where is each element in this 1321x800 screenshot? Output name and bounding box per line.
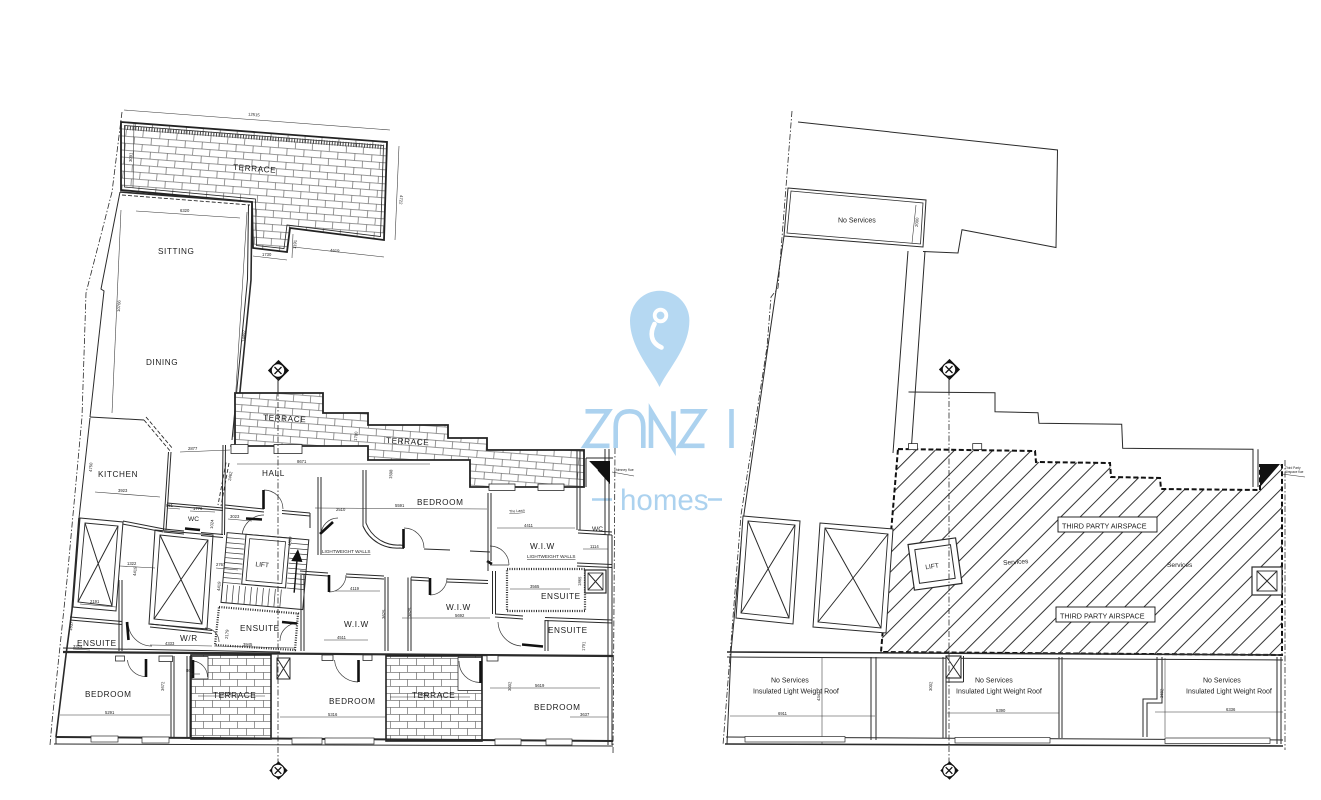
- svg-text:WC: WC: [188, 516, 199, 523]
- svg-text:860: 860: [186, 668, 194, 673]
- svg-text:2877: 2877: [188, 446, 198, 451]
- svg-text:No Services: No Services: [771, 678, 809, 685]
- svg-text:3776: 3776: [222, 691, 232, 696]
- svg-text:BEDROOM: BEDROOM: [85, 690, 132, 699]
- svg-text:2510: 2510: [336, 507, 346, 512]
- svg-text:3625: 3625: [407, 607, 412, 617]
- svg-text:14492: 14492: [241, 329, 247, 342]
- svg-text:3002: 3002: [928, 681, 933, 691]
- svg-text:ENSUITE: ENSUITE: [77, 639, 117, 648]
- svg-text:6336: 6336: [1226, 707, 1236, 712]
- svg-text:4051: 4051: [420, 692, 430, 697]
- svg-text:5390: 5390: [996, 708, 1006, 713]
- svg-text:BEDROOM: BEDROOM: [417, 498, 464, 507]
- svg-text:1322: 1322: [127, 561, 137, 566]
- svg-text:LIFT: LIFT: [255, 561, 269, 569]
- svg-text:4722: 4722: [398, 195, 404, 205]
- svg-text:BEDROOM: BEDROOM: [329, 697, 376, 706]
- svg-text:TERRACE: TERRACE: [412, 691, 455, 700]
- svg-text:5291: 5291: [105, 710, 115, 715]
- svg-text:3945: 3945: [243, 642, 253, 647]
- svg-text:4419: 4419: [132, 566, 138, 576]
- svg-text:2191: 2191: [90, 599, 100, 604]
- svg-text:4342: 4342: [816, 691, 821, 701]
- svg-text:3023: 3023: [230, 514, 240, 519]
- svg-text:Insulated Light Weight Roof: Insulated Light Weight Roof: [1186, 689, 1272, 696]
- svg-text:1598: 1598: [388, 469, 394, 479]
- svg-text:1865: 1865: [577, 576, 582, 586]
- svg-text:2179: 2179: [224, 629, 230, 639]
- svg-text:4419: 4419: [216, 581, 222, 591]
- svg-text:W.I.W: W.I.W: [446, 603, 471, 612]
- svg-text:TERRACE: TERRACE: [213, 691, 256, 700]
- svg-text:4411: 4411: [524, 523, 534, 528]
- svg-text:1780: 1780: [353, 431, 359, 441]
- svg-text:3625: 3625: [381, 609, 386, 619]
- svg-text:1114: 1114: [590, 544, 599, 549]
- svg-text:5692: 5692: [455, 613, 465, 618]
- svg-text:4309: 4309: [287, 536, 293, 546]
- svg-text:Insulated Light Weight Roof: Insulated Light Weight Roof: [753, 689, 839, 696]
- svg-text:No Services: No Services: [838, 218, 876, 225]
- svg-text:WC: WC: [592, 526, 603, 533]
- svg-text:chimney flue: chimney flue: [614, 468, 634, 472]
- svg-text:6320: 6320: [180, 208, 190, 213]
- svg-text:4511: 4511: [337, 635, 347, 640]
- svg-text:3324: 3324: [73, 644, 83, 649]
- svg-text:W.I.W: W.I.W: [530, 542, 555, 551]
- svg-text:12515: 12515: [248, 112, 261, 118]
- svg-text:Services: Services: [1167, 562, 1193, 569]
- svg-text:2000: 2000: [914, 217, 920, 227]
- svg-text:W/R: W/R: [180, 634, 198, 643]
- svg-text:HALL: HALL: [262, 469, 285, 478]
- svg-text:1024: 1024: [209, 519, 215, 529]
- svg-text:3923: 3923: [118, 488, 128, 493]
- svg-text:4333: 4333: [165, 641, 175, 646]
- svg-text:SITTING: SITTING: [158, 247, 195, 256]
- svg-text:No Services: No Services: [1203, 678, 1241, 685]
- svg-text:4619: 4619: [330, 248, 340, 254]
- svg-text:3602: 3602: [1159, 688, 1164, 698]
- svg-text:4119: 4119: [350, 586, 360, 591]
- svg-text:5591: 5591: [395, 503, 405, 508]
- svg-text:3565: 3565: [530, 584, 540, 589]
- svg-text:5619: 5619: [535, 683, 545, 688]
- svg-text:2767: 2767: [216, 562, 226, 567]
- svg-text:8671: 8671: [297, 459, 307, 464]
- svg-text:LIGHTWEIGHT WALLS: LIGHTWEIGHT WALLS: [322, 549, 371, 554]
- svg-text:homes: homes: [620, 484, 709, 517]
- svg-text:6911: 6911: [778, 711, 788, 716]
- svg-text:KITCHEN: KITCHEN: [98, 470, 138, 479]
- svg-text:DINING: DINING: [146, 358, 178, 367]
- svg-text:4750: 4750: [88, 462, 94, 472]
- svg-text:5316: 5316: [328, 712, 338, 717]
- svg-text:THIRD PARTY AIRSPACE: THIRD PARTY AIRSPACE: [1062, 522, 1147, 531]
- svg-text:ENSUITE: ENSUITE: [240, 624, 280, 633]
- svg-text:ENSUITE: ENSUITE: [548, 626, 588, 635]
- svg-text:LIGHTWEIGHT WALLS: LIGHTWEIGHT WALLS: [527, 554, 576, 559]
- svg-text:3091: 3091: [128, 152, 134, 162]
- svg-text:1730: 1730: [262, 252, 272, 257]
- svg-text:10766: 10766: [116, 299, 122, 312]
- svg-text:Airspace flue: Airspace flue: [1285, 470, 1304, 474]
- svg-text:1776: 1776: [193, 506, 203, 511]
- svg-text:No Services: No Services: [975, 678, 1013, 685]
- svg-text:Insulated Light Weight Roof: Insulated Light Weight Roof: [956, 689, 1042, 696]
- svg-text:THIRD PARTY AIRSPACE: THIRD PARTY AIRSPACE: [1060, 612, 1145, 621]
- svg-text:3002: 3002: [507, 681, 512, 691]
- svg-text:1791: 1791: [581, 641, 586, 651]
- svg-text:BEDROOM: BEDROOM: [534, 703, 581, 712]
- svg-text:851: 851: [166, 503, 174, 508]
- svg-text:ENSUITE: ENSUITE: [541, 592, 581, 601]
- svg-text:3637: 3637: [580, 712, 590, 717]
- svg-text:W.I.W: W.I.W: [344, 620, 369, 629]
- svg-text:3672: 3672: [160, 681, 165, 691]
